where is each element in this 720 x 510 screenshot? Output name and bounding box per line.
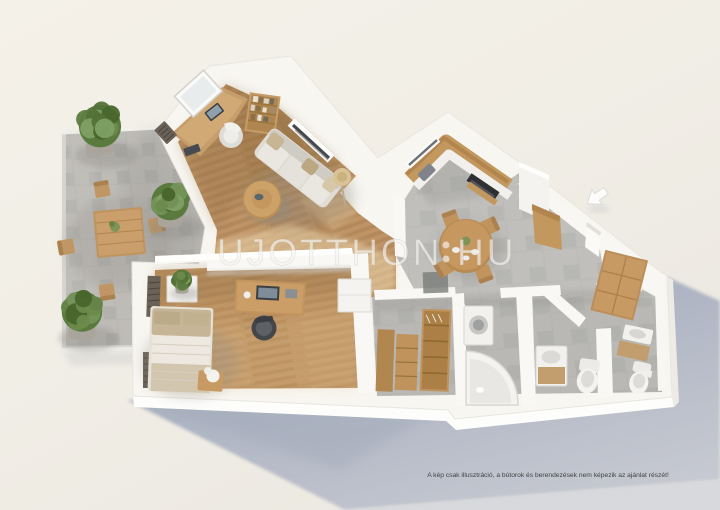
svg-text:HU: HU bbox=[457, 232, 516, 273]
svg-text:UJOTTHON: UJOTTHON bbox=[217, 232, 442, 273]
svg-text:A kép csak illusztráció, a bút: A kép csak illusztráció, a bútorok és be… bbox=[427, 472, 669, 479]
